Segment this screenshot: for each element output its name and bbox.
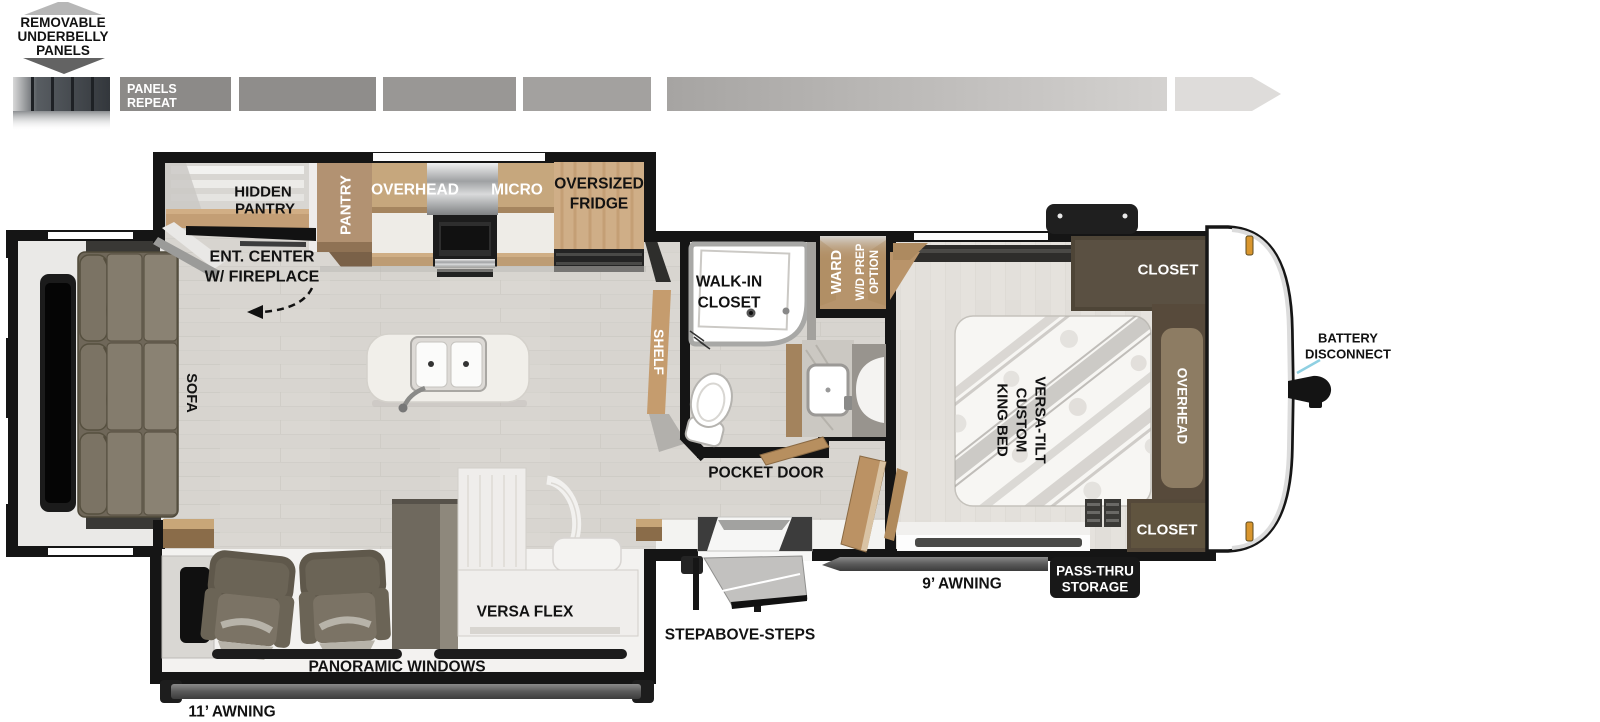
svg-text:WALK-IN: WALK-IN <box>696 274 762 291</box>
svg-text:9’ AWNING: 9’ AWNING <box>922 576 1002 593</box>
svg-text:POCKET DOOR: POCKET DOOR <box>708 465 823 482</box>
svg-text:VERSA FLEX: VERSA FLEX <box>477 604 574 621</box>
svg-text:SOFA: SOFA <box>183 373 199 413</box>
svg-text:CLOSET: CLOSET <box>698 295 761 312</box>
svg-text:STEPABOVE-STEPS: STEPABOVE-STEPS <box>665 627 815 644</box>
svg-text:ENT. CENTER: ENT. CENTER <box>210 249 315 266</box>
svg-text:PANORAMIC WINDOWS: PANORAMIC WINDOWS <box>308 659 485 676</box>
svg-text:KING BED: KING BED <box>994 383 1011 457</box>
svg-text:PANTRY: PANTRY <box>338 175 355 235</box>
svg-text:OVERHEAD: OVERHEAD <box>371 182 459 199</box>
svg-text:HIDDEN: HIDDEN <box>234 184 292 201</box>
svg-text:DISCONNECT: DISCONNECT <box>1305 347 1391 362</box>
svg-text:PANELS: PANELS <box>127 82 177 96</box>
svg-text:BATTERY: BATTERY <box>1318 331 1378 346</box>
svg-text:PANELS: PANELS <box>36 43 90 58</box>
svg-text:REMOVABLE: REMOVABLE <box>20 15 105 30</box>
svg-text:SHELF: SHELF <box>651 329 667 375</box>
svg-text:PASS-THRU: PASS-THRU <box>1056 564 1134 579</box>
svg-text:OVERSIZED: OVERSIZED <box>554 176 644 193</box>
svg-text:11’ AWNING: 11’ AWNING <box>188 704 275 721</box>
svg-text:CLOSET: CLOSET <box>1137 522 1198 539</box>
svg-text:REPEAT: REPEAT <box>127 96 177 110</box>
svg-text:W/ FIREPLACE: W/ FIREPLACE <box>205 269 320 286</box>
svg-text:STORAGE: STORAGE <box>1062 580 1129 595</box>
svg-text:PANTRY: PANTRY <box>235 201 295 218</box>
svg-text:FRIDGE: FRIDGE <box>570 196 629 213</box>
svg-text:W/D PREP: W/D PREP <box>855 243 867 300</box>
svg-text:VERSA-TILT: VERSA-TILT <box>1032 376 1049 463</box>
svg-text:WARD: WARD <box>829 250 845 294</box>
svg-text:MICRO: MICRO <box>491 182 543 199</box>
svg-text:CUSTOM: CUSTOM <box>1013 388 1030 453</box>
svg-text:OPTION: OPTION <box>869 250 881 294</box>
svg-text:UNDERBELLY: UNDERBELLY <box>17 29 108 44</box>
svg-text:OVERHEAD: OVERHEAD <box>1175 368 1190 445</box>
svg-text:CLOSET: CLOSET <box>1138 262 1199 279</box>
